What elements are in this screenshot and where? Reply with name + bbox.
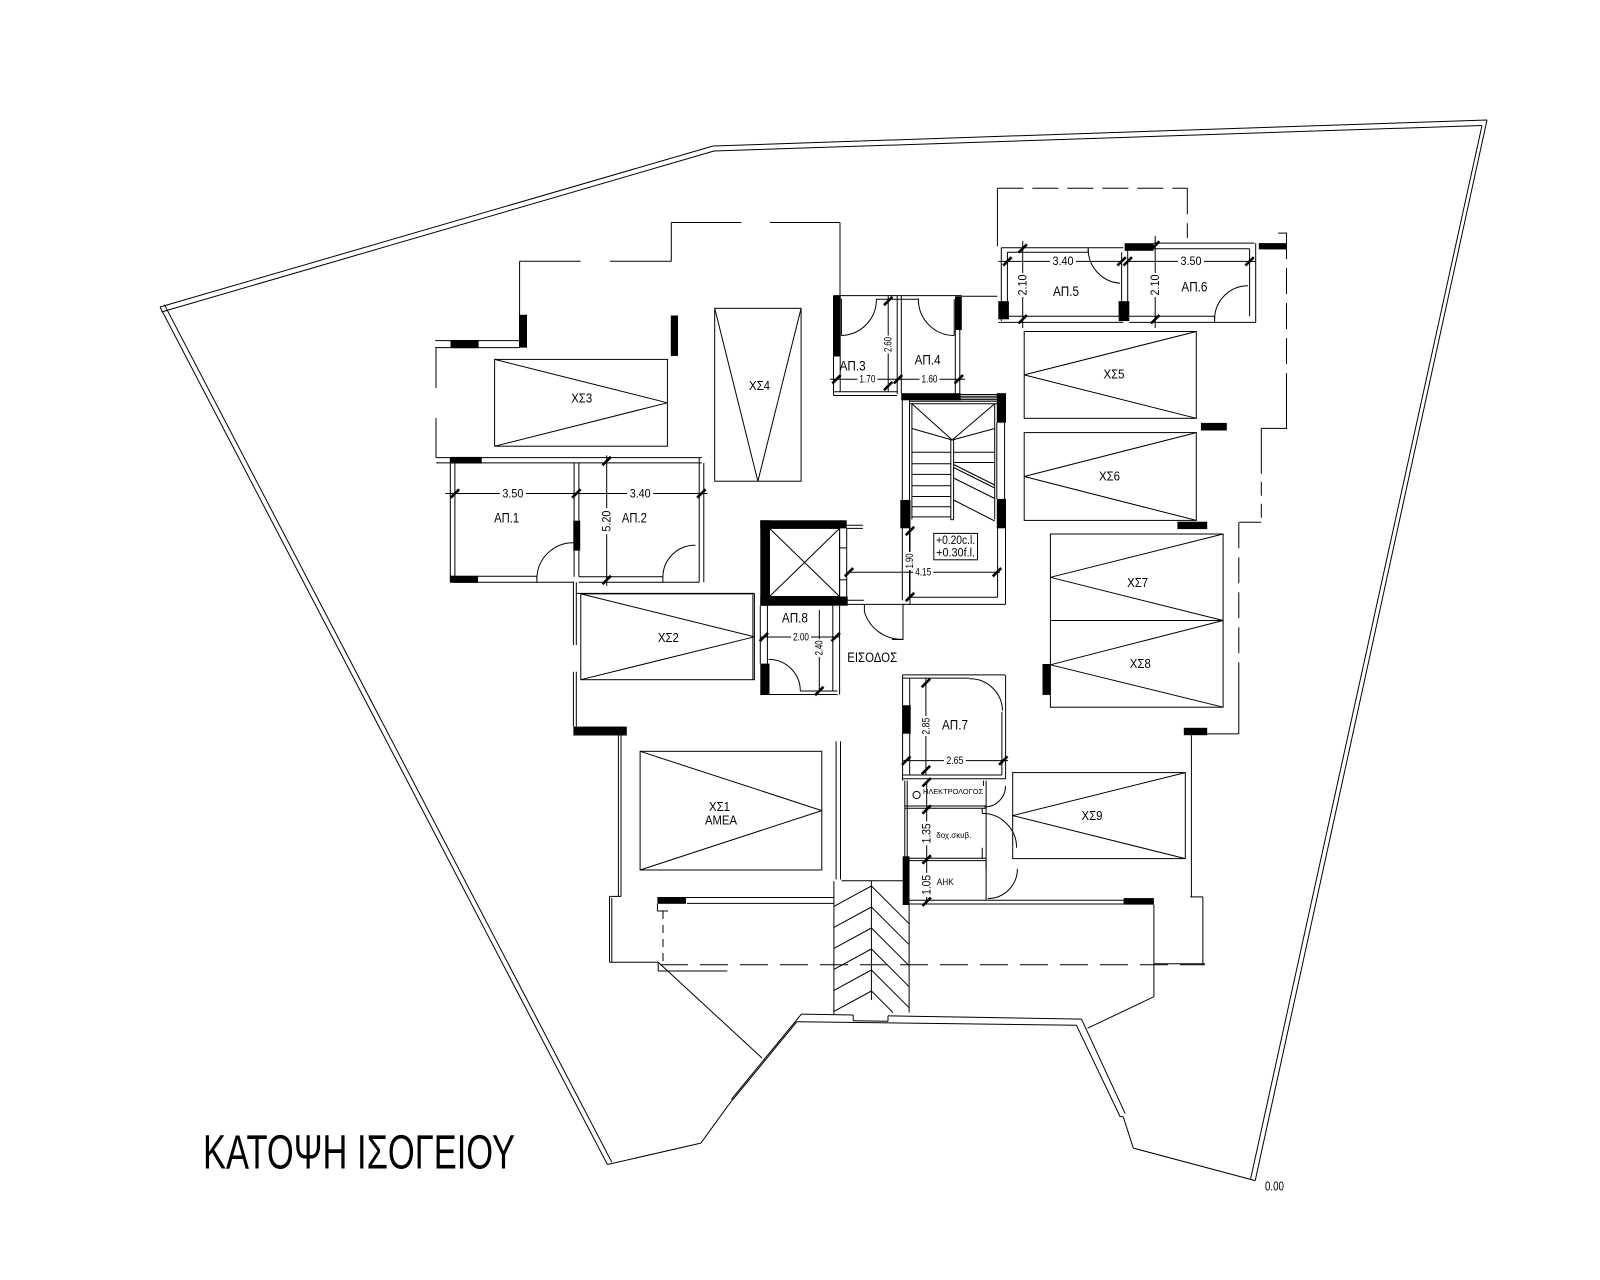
svg-text:4.15: 4.15 <box>915 567 931 579</box>
svg-text:ΚΑΤΟΨΗ ΙΣΟΓΕΙΟΥ: ΚΑΤΟΨΗ ΙΣΟΓΕΙΟΥ <box>203 1127 515 1180</box>
svg-text:ΑΠ.4: ΑΠ.4 <box>915 353 941 368</box>
svg-text:1.05: 1.05 <box>922 875 934 895</box>
svg-text:ΧΣ9: ΧΣ9 <box>1082 808 1103 823</box>
svg-text:δοχ.σκυβ.: δοχ.σκυβ. <box>936 831 971 840</box>
svg-text:ΑΠ.2: ΑΠ.2 <box>622 511 647 526</box>
svg-text:2.40: 2.40 <box>814 640 826 655</box>
svg-text:0.00: 0.00 <box>1265 1180 1284 1194</box>
svg-text:1.70: 1.70 <box>859 374 875 386</box>
svg-text:ΑΠ.3: ΑΠ.3 <box>840 359 866 374</box>
svg-text:2.85: 2.85 <box>920 718 932 735</box>
svg-text:3.50: 3.50 <box>502 486 523 500</box>
svg-text:ΑΠ.7: ΑΠ.7 <box>942 718 968 733</box>
svg-text:3.40: 3.40 <box>630 486 651 500</box>
svg-text:ΧΣ8: ΧΣ8 <box>1130 656 1151 671</box>
svg-text:ΑΠ.8: ΑΠ.8 <box>782 610 808 625</box>
svg-text:5.20: 5.20 <box>600 510 614 531</box>
svg-text:2.10: 2.10 <box>1016 274 1030 295</box>
svg-text:ΑΠ.6: ΑΠ.6 <box>1181 280 1207 295</box>
svg-text:ΕΙΣΟΔΟΣ: ΕΙΣΟΔΟΣ <box>847 650 897 665</box>
svg-text:3.50: 3.50 <box>1181 254 1202 268</box>
svg-text:2.60: 2.60 <box>883 337 895 352</box>
svg-text:ΑΠ.5: ΑΠ.5 <box>1053 284 1079 299</box>
svg-text:ΧΣ2: ΧΣ2 <box>658 630 679 645</box>
svg-text:ΑΗΚ: ΑΗΚ <box>937 877 954 887</box>
svg-text:ΧΣ6: ΧΣ6 <box>1099 469 1120 484</box>
svg-text:1.35: 1.35 <box>922 823 934 843</box>
svg-text:ΑΠ.1: ΑΠ.1 <box>494 511 519 526</box>
svg-text:ΧΣ4: ΧΣ4 <box>749 378 770 393</box>
svg-text:ΧΣ5: ΧΣ5 <box>1104 367 1125 382</box>
svg-text:1.60: 1.60 <box>922 374 938 386</box>
svg-text:ΑΜΕΑ: ΑΜΕΑ <box>705 812 737 827</box>
svg-text:3.40: 3.40 <box>1053 254 1074 268</box>
svg-text:ΧΣ7: ΧΣ7 <box>1127 575 1148 590</box>
svg-text:2.65: 2.65 <box>946 755 963 767</box>
svg-text:2.10: 2.10 <box>1148 274 1162 295</box>
svg-text:ΧΣ3: ΧΣ3 <box>571 391 592 406</box>
svg-text:+0.20c.l.: +0.20c.l. <box>936 535 975 547</box>
svg-text:2.00: 2.00 <box>793 631 809 643</box>
svg-text:+0.30f.l.: +0.30f.l. <box>936 548 975 560</box>
svg-text:ΗΛΕΚΤΡΟΛΟΓΟΣ: ΗΛΕΚΤΡΟΛΟΓΟΣ <box>923 787 983 796</box>
